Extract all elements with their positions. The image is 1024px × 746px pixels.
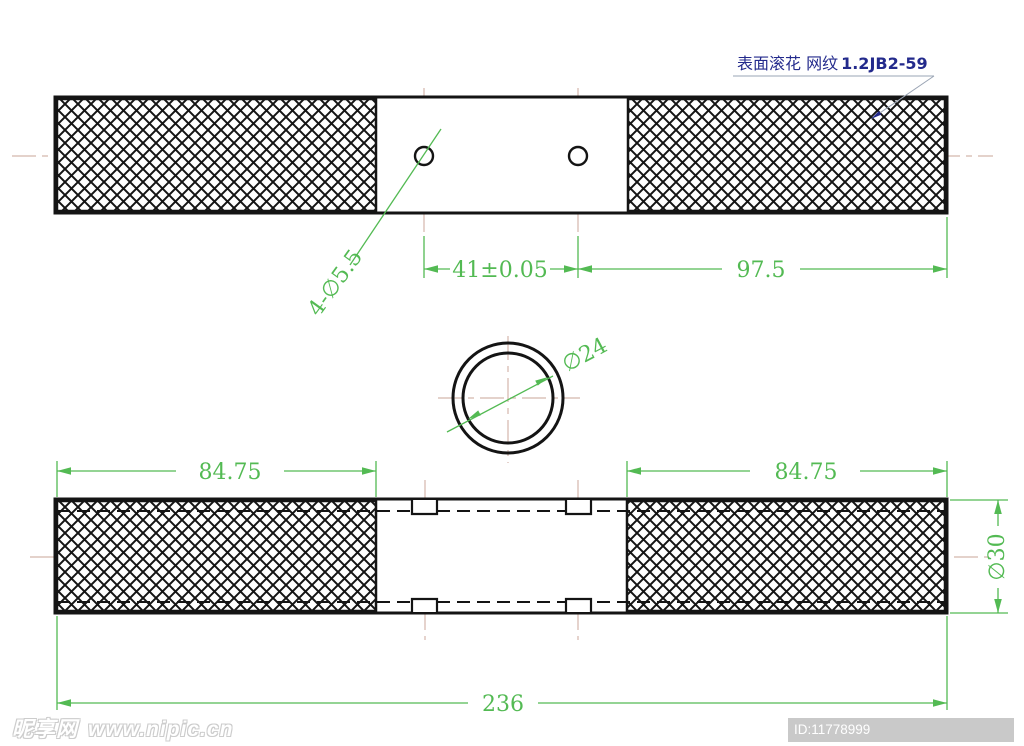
dim8475L-arrow-left (57, 467, 71, 475)
dim8475L-arrow-right (362, 467, 376, 475)
knurl-note-text: 表面滚花 网纹1.2JB2-59 (737, 54, 928, 73)
dim-knurl-left-label: 84.75 (199, 460, 262, 485)
engineering-drawing-svg: 4-∅5.5 41±0.05 97.5 表面滚花 网纹1.2JB2-59 ∅24 (0, 0, 1024, 746)
dim-outer-diameter-label: ∅30 (985, 533, 1010, 580)
top-right-knurl-section (628, 99, 945, 211)
dim236-arrow-right (933, 699, 947, 707)
hole2-notch-top (566, 500, 591, 514)
bottom-left-knurl-section (57, 501, 376, 611)
section-view: ∅24 (438, 333, 612, 463)
dim975-arrow-right (933, 265, 947, 273)
dim8475R-arrow-right (933, 467, 947, 475)
dim-right-knurl-label: 97.5 (737, 258, 786, 283)
top-left-knurl-section (57, 99, 376, 211)
dim41-arrow-right (564, 265, 578, 273)
watermark-site-url: www.nipic.cn (88, 718, 233, 741)
top-view: 4-∅5.5 41±0.05 97.5 (12, 88, 993, 321)
hole-1 (415, 147, 433, 165)
dim8475R-arrow-left (627, 467, 641, 475)
dim-hole-spacing-label: 41±0.05 (452, 258, 547, 283)
hole-2 (569, 147, 587, 165)
knurl-note-code: 1.2JB2-59 (841, 54, 928, 73)
dim236-arrow-left (57, 699, 71, 707)
watermark-site-name: 昵享网 (12, 718, 78, 741)
watermark-id-badge: ID:11778999 NO:20180810111552634123 (788, 718, 1014, 742)
dim975-arrow-left (578, 265, 592, 273)
dim41-arrow-left (424, 265, 438, 273)
knurl-note-cn: 表面滚花 网纹 (737, 54, 838, 73)
bottom-view: 84.75 84.75 ∅30 236 (30, 460, 1010, 717)
hole-callout-label: 4-∅5.5 (303, 245, 368, 321)
dim-total-length-label: 236 (482, 692, 524, 717)
dimd30-arrow-top (994, 500, 1002, 514)
bottom-right-knurl-section (627, 501, 945, 611)
hole1-notch-top (412, 500, 437, 514)
hole2-notch-bottom (566, 599, 591, 612)
hole1-notch-bottom (412, 599, 437, 612)
drawing-page: 4-∅5.5 41±0.05 97.5 表面滚花 网纹1.2JB2-59 ∅24 (0, 0, 1024, 746)
dim-knurl-right-label: 84.75 (775, 460, 838, 485)
watermark-logo: 昵享网www.nipic.cn (12, 716, 233, 746)
dimd30-arrow-bottom (994, 599, 1002, 613)
dim-bore-diameter-label: ∅24 (558, 333, 611, 377)
